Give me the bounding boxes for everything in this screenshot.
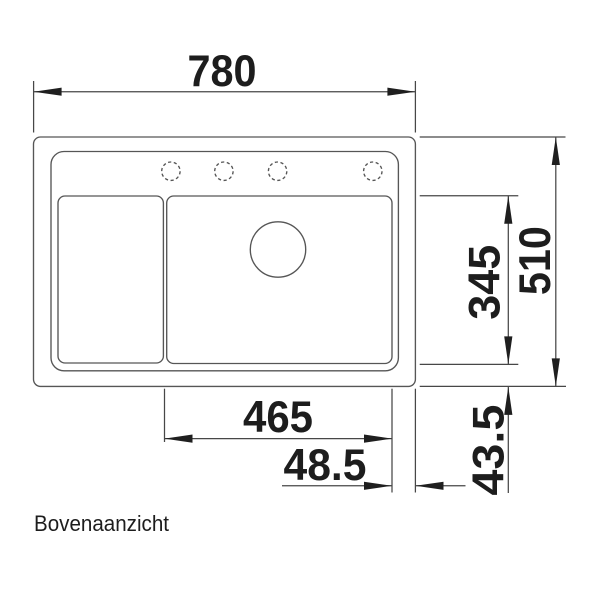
svg-text:48.5: 48.5: [284, 441, 367, 490]
svg-text:465: 465: [243, 393, 313, 442]
svg-text:Bovenaanzicht: Bovenaanzicht: [34, 511, 170, 536]
svg-text:510: 510: [511, 226, 560, 295]
svg-text:43.5: 43.5: [465, 405, 514, 496]
svg-text:780: 780: [188, 47, 257, 96]
svg-text:345: 345: [461, 245, 510, 320]
